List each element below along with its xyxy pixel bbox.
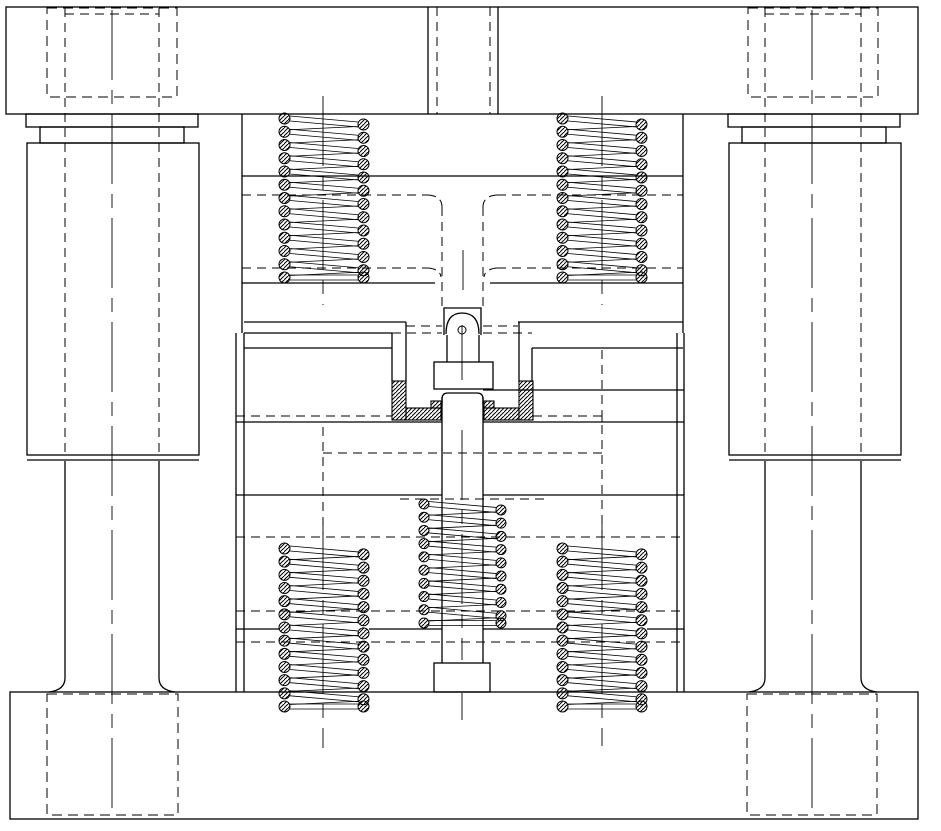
- spring-lower-left-wire: [290, 559, 358, 565]
- spring-center-ejector-wire: [429, 612, 496, 618]
- spring-upper-right-coil-section: [636, 159, 647, 170]
- spring-upper-left-wire: [290, 259, 358, 262]
- spring-upper-left-wire: [290, 214, 358, 220]
- spring-lower-right-coil-section: [557, 556, 568, 567]
- spring-lower-left-wire: [290, 649, 358, 652]
- spring-lower-left-coil-section: [279, 583, 290, 594]
- spring-upper-right-wire: [568, 166, 636, 169]
- spring-center-ejector-coil-section: [419, 578, 429, 588]
- spring-lower-left-wire: [290, 617, 358, 623]
- spring-lower-left-coil-section: [358, 575, 369, 586]
- spring-center-ejector-wire: [429, 538, 496, 541]
- spring-upper-right-coil-section: [557, 126, 568, 137]
- spring-upper-left-wire: [290, 153, 358, 156]
- spring-upper-right-coil-section: [557, 179, 568, 190]
- spring-upper-right-coil-section: [636, 132, 647, 143]
- spring-lower-left-coil-section: [279, 543, 290, 554]
- spring-lower-right-coil-section: [557, 701, 568, 712]
- spring-upper-right-coil-section: [557, 140, 568, 151]
- spring-upper-right-coil-section: [636, 251, 647, 262]
- spring-upper-left-coil-section: [279, 153, 290, 164]
- spring-upper-left-wire: [290, 134, 358, 140]
- spring-lower-left-wire: [290, 622, 358, 625]
- spring-center-ejector-coil-section: [419, 552, 429, 562]
- spring-lower-left-wire: [290, 625, 358, 631]
- spring-center-ejector-wire: [429, 599, 496, 605]
- spring-center-ejector-wire: [429, 605, 496, 608]
- spring-upper-right-coil-section: [636, 119, 647, 130]
- die-insert-left-step: [431, 401, 441, 408]
- spring-upper-left-wire: [290, 126, 358, 129]
- spring-center-ejector-wire: [429, 520, 496, 526]
- hidden-pocket-bottom-left: [47, 694, 178, 815]
- spring-lower-right-coil-section: [557, 648, 568, 659]
- spring-lower-right-coil-section: [636, 628, 647, 639]
- spring-upper-left-wire: [290, 169, 358, 175]
- spring-center-ejector-wire: [429, 507, 496, 513]
- spring-lower-right-wire: [568, 596, 636, 599]
- spring-lower-left-wire: [290, 662, 358, 665]
- spring-lower-left-coil-section: [358, 588, 369, 599]
- spring-lower-right-coil-section: [557, 569, 568, 580]
- spring-lower-left-coil-section: [279, 688, 290, 699]
- spring-lower-left-wire: [290, 696, 358, 702]
- spring-upper-right-coil-section: [557, 259, 568, 270]
- spring-upper-left-coil-section: [279, 232, 290, 243]
- spring-lower-right-wire: [568, 591, 636, 597]
- spring-lower-right-coil-section: [636, 667, 647, 678]
- spring-lower-right-coil-section: [636, 602, 647, 613]
- spring-upper-right-coil-section: [636, 225, 647, 236]
- spring-upper-left-coil-section: [279, 259, 290, 270]
- spring-center-ejector-wire: [429, 591, 496, 594]
- spring-upper-left-wire: [290, 116, 358, 122]
- spring-upper-left-wire: [290, 196, 358, 202]
- spring-lower-right-coil-section: [636, 549, 647, 560]
- spring-center-ejector-wire: [429, 515, 496, 521]
- spring-center-ejector-wire: [429, 502, 496, 508]
- spring-lower-left-coil-section: [279, 556, 290, 567]
- spring-lower-left-coil-section: [279, 569, 290, 580]
- spring-lower-right-coil-section: [557, 662, 568, 673]
- punch-shoulder: [434, 362, 493, 389]
- spring-upper-left-wire: [290, 235, 358, 241]
- spring-upper-left-wire: [290, 262, 358, 268]
- spring-lower-right-coil-section: [636, 575, 647, 586]
- spring-lower-left-wire: [290, 564, 358, 570]
- spring-lower-right-coil-section: [636, 654, 647, 665]
- spring-lower-left-wire: [290, 583, 358, 586]
- hidden-lines-layer: [47, 7, 878, 815]
- punch-guide-bore: [444, 308, 481, 335]
- spring-center-ejector-wire: [429, 552, 496, 555]
- spring-center-ejector-wire: [429, 541, 496, 547]
- spring-center-ejector-wire: [429, 607, 496, 613]
- spring-lower-right-coil-section: [557, 596, 568, 607]
- spring-center-ejector-wire: [429, 573, 496, 579]
- spring-upper-right-coil-section: [636, 185, 647, 196]
- spring-lower-left-wire: [290, 599, 358, 605]
- spring-center-ejector-wire: [429, 554, 496, 560]
- bottom-plate: [10, 692, 918, 819]
- spring-lower-left-coil-section: [358, 667, 369, 678]
- spring-center-ejector-coil-section: [496, 518, 506, 528]
- spring-center-ejector-wire: [429, 586, 496, 592]
- spring-lower-left-wire: [290, 678, 358, 684]
- spring-upper-right-coil-section: [557, 219, 568, 230]
- spring-upper-left-coil-section: [279, 113, 290, 124]
- hatched-sections-layer: [392, 381, 533, 420]
- spring-upper-left-wire: [290, 156, 358, 162]
- spring-upper-left-wire: [290, 232, 358, 235]
- spring-center-ejector-wire: [429, 525, 496, 528]
- spring-lower-left-wire: [290, 551, 358, 557]
- spring-lower-right-coil-section: [557, 688, 568, 699]
- spring-lower-left-wire: [290, 670, 358, 676]
- spring-lower-left-wire: [290, 656, 358, 662]
- spring-upper-left-coil-section: [279, 272, 290, 283]
- spring-upper-left-wire: [290, 209, 358, 215]
- punch-nose-dome: [446, 313, 479, 334]
- spring-lower-right-coil-section: [636, 681, 647, 692]
- punch-stem-cap: [442, 393, 483, 405]
- spring-center-ejector-coil-section: [496, 618, 506, 628]
- spring-upper-left-wire: [290, 174, 358, 180]
- spring-upper-left-wire: [290, 143, 358, 149]
- spring-lower-right-coil-section: [636, 562, 647, 573]
- spring-upper-left-coil-section: [279, 193, 290, 204]
- spring-lower-left-wire: [290, 577, 358, 583]
- spring-center-ejector-coil-section: [496, 505, 506, 515]
- spring-lower-left-wire: [290, 665, 358, 671]
- spring-upper-right-coil-section: [557, 232, 568, 243]
- spring-lower-right-coil-section: [636, 588, 647, 599]
- die-insert-left-column: [392, 381, 406, 420]
- top-plate: [6, 7, 918, 114]
- pocket-corner-195-right: [483, 195, 497, 207]
- spring-lower-right-coil-section: [557, 675, 568, 686]
- spring-lower-left-wire: [290, 643, 358, 649]
- spring-upper-left-coil-section: [279, 206, 290, 217]
- spring-upper-left-coil-section: [358, 185, 369, 196]
- die-insert-left-strip: [406, 408, 441, 420]
- pocket-corner-268-right: [484, 268, 497, 277]
- spring-upper-right-coil-section: [636, 198, 647, 209]
- bushing-left-body: [27, 143, 199, 455]
- spring-center-ejector-coil-section: [419, 592, 429, 602]
- spring-upper-left-coil-section: [279, 246, 290, 257]
- spring-upper-right-coil-section: [636, 212, 647, 223]
- spring-center-ejector-coil-section: [419, 565, 429, 575]
- die-insert-right-strip: [484, 408, 519, 420]
- spring-lower-left-coil-section: [279, 675, 290, 686]
- spring-center-ejector-coil-section: [419, 605, 429, 615]
- spring-upper-right-coil-section: [636, 238, 647, 249]
- pocket-corner-268-left: [428, 268, 441, 277]
- spring-center-ejector-wire: [429, 594, 496, 600]
- spring-center-ejector-wire: [429, 528, 496, 534]
- spring-upper-left-wire: [290, 179, 358, 182]
- spring-lower-left-coil-section: [279, 609, 290, 620]
- die-assembly-drawing: [0, 0, 941, 831]
- spring-lower-left-wire: [290, 556, 358, 559]
- spring-lower-left-coil-section: [279, 701, 290, 712]
- spring-lower-left-coil-section: [279, 662, 290, 673]
- spring-center-ejector-coil-section: [496, 584, 506, 594]
- spring-center-ejector-wire: [429, 559, 496, 565]
- spring-upper-left-wire: [290, 121, 358, 127]
- pillar-right-flare-r: [861, 678, 877, 692]
- spring-upper-left-coil-section: [358, 172, 369, 183]
- spring-center-ejector-coil-section: [419, 618, 429, 628]
- spring-center-ejector-wire: [429, 578, 496, 581]
- spring-center-ejector-coil-section: [496, 598, 506, 608]
- spring-upper-right-coil-section: [557, 206, 568, 217]
- spring-upper-left-wire: [290, 140, 358, 143]
- die-insert-right-step: [484, 401, 494, 408]
- spring-lower-right-coil-section: [557, 583, 568, 594]
- spring-lower-left-wire: [290, 596, 358, 599]
- spring-lower-left-coil-section: [358, 602, 369, 613]
- spring-center-ejector-coil-section: [419, 499, 429, 509]
- spring-center-ejector-coil-section: [419, 525, 429, 535]
- spring-center-ejector-wire: [429, 512, 496, 515]
- spring-lower-left-coil-section: [358, 654, 369, 665]
- bushing-right-neck: [742, 127, 886, 143]
- spring-lower-left-wire: [290, 635, 358, 638]
- spring-upper-left-wire: [290, 254, 358, 260]
- spring-lower-right-coil-section: [557, 635, 568, 646]
- spring-lower-left-coil-section: [358, 641, 369, 652]
- spring-center-ejector-wire: [429, 533, 496, 539]
- spring-upper-left-wire: [290, 222, 358, 228]
- spring-lower-left-wire: [290, 604, 358, 610]
- pillar-right-flare-l: [749, 678, 765, 692]
- spring-upper-left-wire: [290, 187, 358, 193]
- pocket-corner-195-left: [428, 195, 442, 207]
- spring-upper-left-wire: [290, 206, 358, 209]
- spring-upper-right-coil-section: [557, 153, 568, 164]
- spring-lower-left-coil-section: [279, 596, 290, 607]
- spring-upper-right-coil-section: [636, 172, 647, 183]
- spring-lower-left-wire: [290, 570, 358, 573]
- spring-upper-left-coil-section: [279, 140, 290, 151]
- spring-lower-right-coil-section: [636, 701, 647, 712]
- spring-upper-left-wire: [290, 227, 358, 233]
- spring-upper-left-coil-section: [358, 145, 369, 156]
- coil-springs-layer: [279, 113, 647, 712]
- spring-center-ejector-wire: [429, 568, 496, 574]
- spring-upper-left-coil-section: [279, 166, 290, 177]
- spring-lower-right-coil-section: [557, 622, 568, 633]
- spring-upper-right-coil-section: [557, 193, 568, 204]
- spring-upper-left-coil-section: [358, 225, 369, 236]
- spring-upper-left-coil-section: [358, 238, 369, 249]
- spring-upper-right-coil-section: [636, 272, 647, 283]
- spring-upper-left-coil-section: [358, 159, 369, 170]
- spring-lower-left-coil-section: [358, 701, 369, 712]
- spring-lower-left-coil-section: [279, 635, 290, 646]
- spring-upper-left-wire: [290, 182, 358, 188]
- spring-upper-left-wire: [290, 161, 358, 167]
- spring-lower-right-coil-section: [557, 609, 568, 620]
- pillar-left-flare-r: [159, 678, 175, 692]
- spring-upper-left-wire: [290, 240, 358, 246]
- pillar-left-flare-l: [49, 678, 65, 692]
- bushing-right-body: [729, 143, 901, 455]
- spring-upper-left-wire: [290, 193, 358, 196]
- spring-upper-left-coil-section: [358, 212, 369, 223]
- spring-lower-left-wire: [290, 651, 358, 657]
- center-lines-layer: [112, 10, 812, 816]
- hidden-counterbore-top-right: [748, 8, 878, 97]
- spring-center-ejector-wire: [429, 565, 496, 568]
- spring-center-ejector-coil-section: [496, 545, 506, 555]
- spring-upper-right-coil-section: [557, 113, 568, 124]
- spring-lower-left-wire: [290, 638, 358, 644]
- spring-lower-left-wire: [290, 612, 358, 618]
- spring-lower-left-coil-section: [358, 681, 369, 692]
- spring-upper-left-wire: [290, 249, 358, 255]
- cad-canvas: [0, 0, 941, 831]
- spring-upper-left-coil-section: [358, 272, 369, 283]
- spring-lower-left-coil-section: [358, 615, 369, 626]
- spring-upper-right-wire: [568, 169, 636, 175]
- spring-upper-right-wire: [568, 193, 636, 196]
- spring-upper-right-coil-section: [557, 246, 568, 257]
- spring-center-ejector-wire: [429, 546, 496, 552]
- spring-lower-right-coil-section: [636, 641, 647, 652]
- spring-lower-left-wire: [290, 586, 358, 592]
- spring-upper-left-coil-section: [279, 219, 290, 230]
- spring-center-ejector-coil-section: [496, 571, 506, 581]
- spring-center-ejector-coil-section: [496, 531, 506, 541]
- spring-upper-left-wire: [290, 201, 358, 207]
- spring-lower-left-wire: [290, 591, 358, 597]
- spring-lower-left-coil-section: [279, 622, 290, 633]
- spring-upper-right-coil-section: [557, 272, 568, 283]
- spring-lower-left-coil-section: [358, 549, 369, 560]
- spring-upper-left-wire: [290, 166, 358, 169]
- spring-center-ejector-wire: [429, 581, 496, 587]
- spring-lower-left-wire: [290, 675, 358, 678]
- spring-upper-right-coil-section: [557, 166, 568, 177]
- spring-lower-left-wire: [290, 688, 358, 691]
- spring-lower-left-wire: [290, 546, 358, 552]
- spring-upper-left-coil-section: [358, 119, 369, 130]
- spring-lower-right-coil-section: [636, 615, 647, 626]
- spring-lower-left-wire: [290, 630, 358, 636]
- spring-upper-left-coil-section: [279, 179, 290, 190]
- spring-upper-left-wire: [290, 219, 358, 222]
- spring-center-ejector-coil-section: [496, 558, 506, 568]
- spring-center-ejector-coil-section: [419, 512, 429, 522]
- spring-lower-left-wire: [290, 683, 358, 689]
- bushing-right-flange: [728, 114, 900, 127]
- spring-lower-right-wire: [568, 696, 636, 702]
- spring-upper-left-wire: [290, 246, 358, 249]
- spring-lower-left-coil-section: [358, 562, 369, 573]
- spring-lower-right-wire: [568, 617, 636, 623]
- spring-lower-left-wire: [290, 572, 358, 578]
- spring-upper-left-coil-section: [358, 132, 369, 143]
- ejector-rod-head: [434, 663, 490, 692]
- spring-upper-right-coil-section: [636, 145, 647, 156]
- profile-paths-layer: [49, 308, 877, 692]
- spring-lower-right-coil-section: [557, 543, 568, 554]
- spring-center-ejector-coil-section: [419, 539, 429, 549]
- spring-upper-left-coil-section: [358, 198, 369, 209]
- spring-upper-left-coil-section: [279, 126, 290, 137]
- spring-upper-left-wire: [290, 129, 358, 135]
- spring-lower-left-coil-section: [279, 648, 290, 659]
- spring-upper-left-coil-section: [358, 251, 369, 262]
- spring-upper-left-wire: [290, 148, 358, 154]
- die-insert-right-column: [519, 381, 533, 420]
- spring-lower-left-coil-section: [358, 628, 369, 639]
